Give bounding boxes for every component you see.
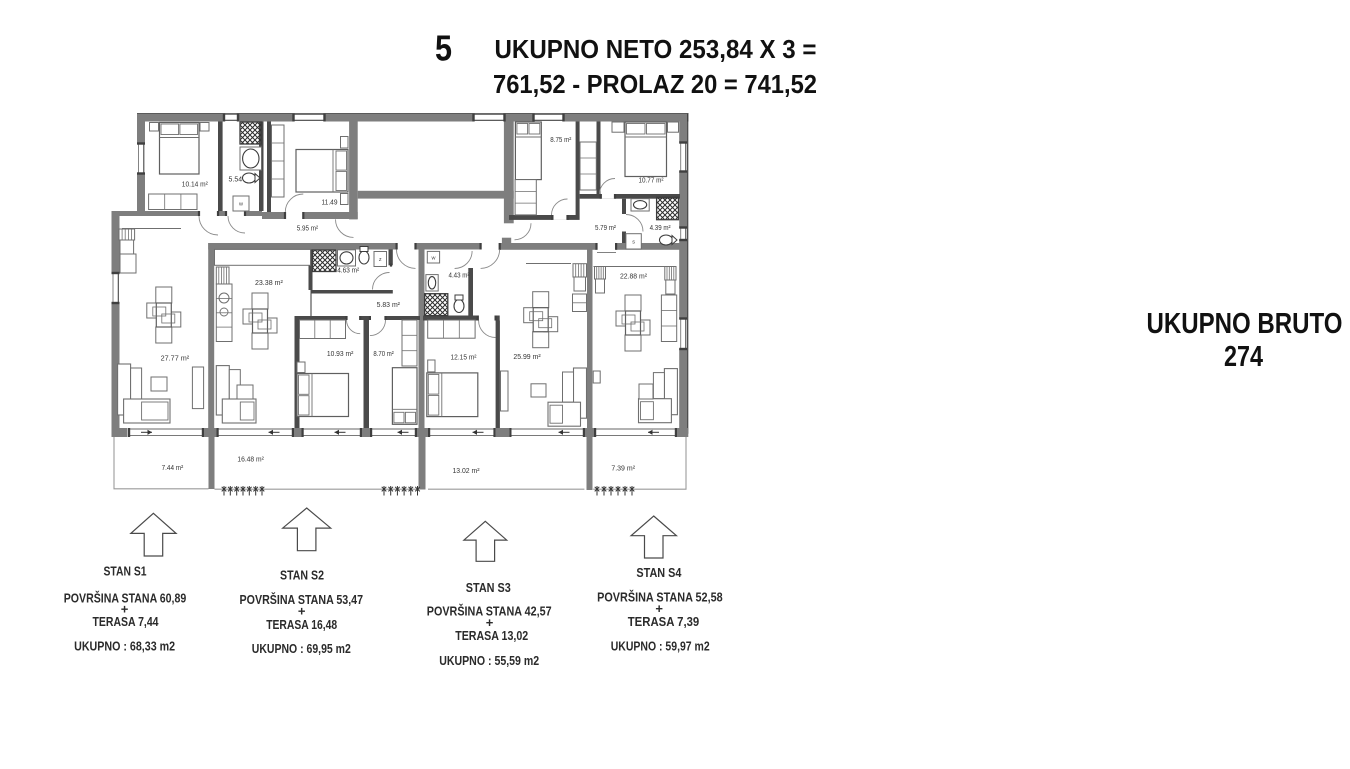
svg-text:27.77 m²: 27.77 m² [161, 353, 190, 362]
svg-text:UKUPNO : 59,97 m2: UKUPNO : 59,97 m2 [611, 639, 710, 654]
svg-text:UKUPNO : 55,59 m2: UKUPNO : 55,59 m2 [439, 653, 539, 668]
svg-text:5.79 m²: 5.79 m² [595, 223, 616, 232]
svg-text:TERASA 7,39: TERASA 7,39 [628, 614, 700, 629]
svg-text:274: 274 [1224, 341, 1263, 373]
svg-text:TERASA 7,44: TERASA 7,44 [93, 614, 160, 629]
svg-text:UKUPNO : 69,95 m2: UKUPNO : 69,95 m2 [252, 641, 351, 656]
svg-text:UKUPNO NETO 253,84 X 3 =: UKUPNO NETO 253,84 X 3 = [495, 34, 817, 64]
svg-text:w: w [431, 255, 436, 261]
svg-text:STAN S1: STAN S1 [104, 564, 147, 579]
svg-text:23.38 m²: 23.38 m² [255, 278, 283, 287]
svg-text:UKUPNO BRUTO: UKUPNO BRUTO [1147, 308, 1343, 340]
svg-text:5: 5 [435, 28, 452, 69]
svg-text:7.44 m²: 7.44 m² [162, 463, 184, 472]
svg-text:11.49: 11.49 [322, 197, 338, 206]
svg-text:w: w [238, 202, 243, 208]
svg-text:5.83 m²: 5.83 m² [377, 300, 401, 309]
svg-text:10.93 m²: 10.93 m² [327, 349, 354, 358]
svg-text:STAN S2: STAN S2 [280, 568, 324, 583]
svg-text:s: s [632, 240, 635, 246]
svg-text:4.39 m²: 4.39 m² [650, 223, 671, 232]
svg-text:12.15 m²: 12.15 m² [451, 353, 478, 362]
svg-text:4.63 m²: 4.63 m² [337, 266, 359, 275]
svg-text:STAN S3: STAN S3 [466, 580, 511, 595]
svg-text:TERASA 13,02: TERASA 13,02 [455, 628, 528, 643]
svg-text:TERASA 16,48: TERASA 16,48 [266, 617, 337, 632]
svg-text:z: z [379, 257, 382, 263]
svg-text:5.54: 5.54 [229, 174, 243, 183]
svg-text:7.39 m²: 7.39 m² [611, 463, 635, 472]
svg-text:STAN S4: STAN S4 [636, 565, 682, 580]
svg-text:22.88 m²: 22.88 m² [620, 272, 648, 281]
svg-text:5.95 m²: 5.95 m² [297, 223, 319, 232]
svg-text:16.48 m²: 16.48 m² [237, 454, 264, 463]
svg-text:761,52 - PROLAZ 20 = 741,52: 761,52 - PROLAZ 20 = 741,52 [493, 69, 817, 99]
svg-text:25.99 m²: 25.99 m² [513, 352, 541, 361]
svg-text:UKUPNO : 68,33 m2: UKUPNO : 68,33 m2 [74, 639, 175, 654]
svg-text:10.14 m²: 10.14 m² [182, 179, 209, 188]
svg-text:8.70 m²: 8.70 m² [373, 349, 394, 358]
svg-text:10.77 m²: 10.77 m² [638, 176, 664, 185]
svg-text:4.43 m²: 4.43 m² [449, 271, 470, 280]
svg-text:8.75 m²: 8.75 m² [550, 135, 571, 144]
svg-text:13.02 m²: 13.02 m² [452, 466, 480, 475]
